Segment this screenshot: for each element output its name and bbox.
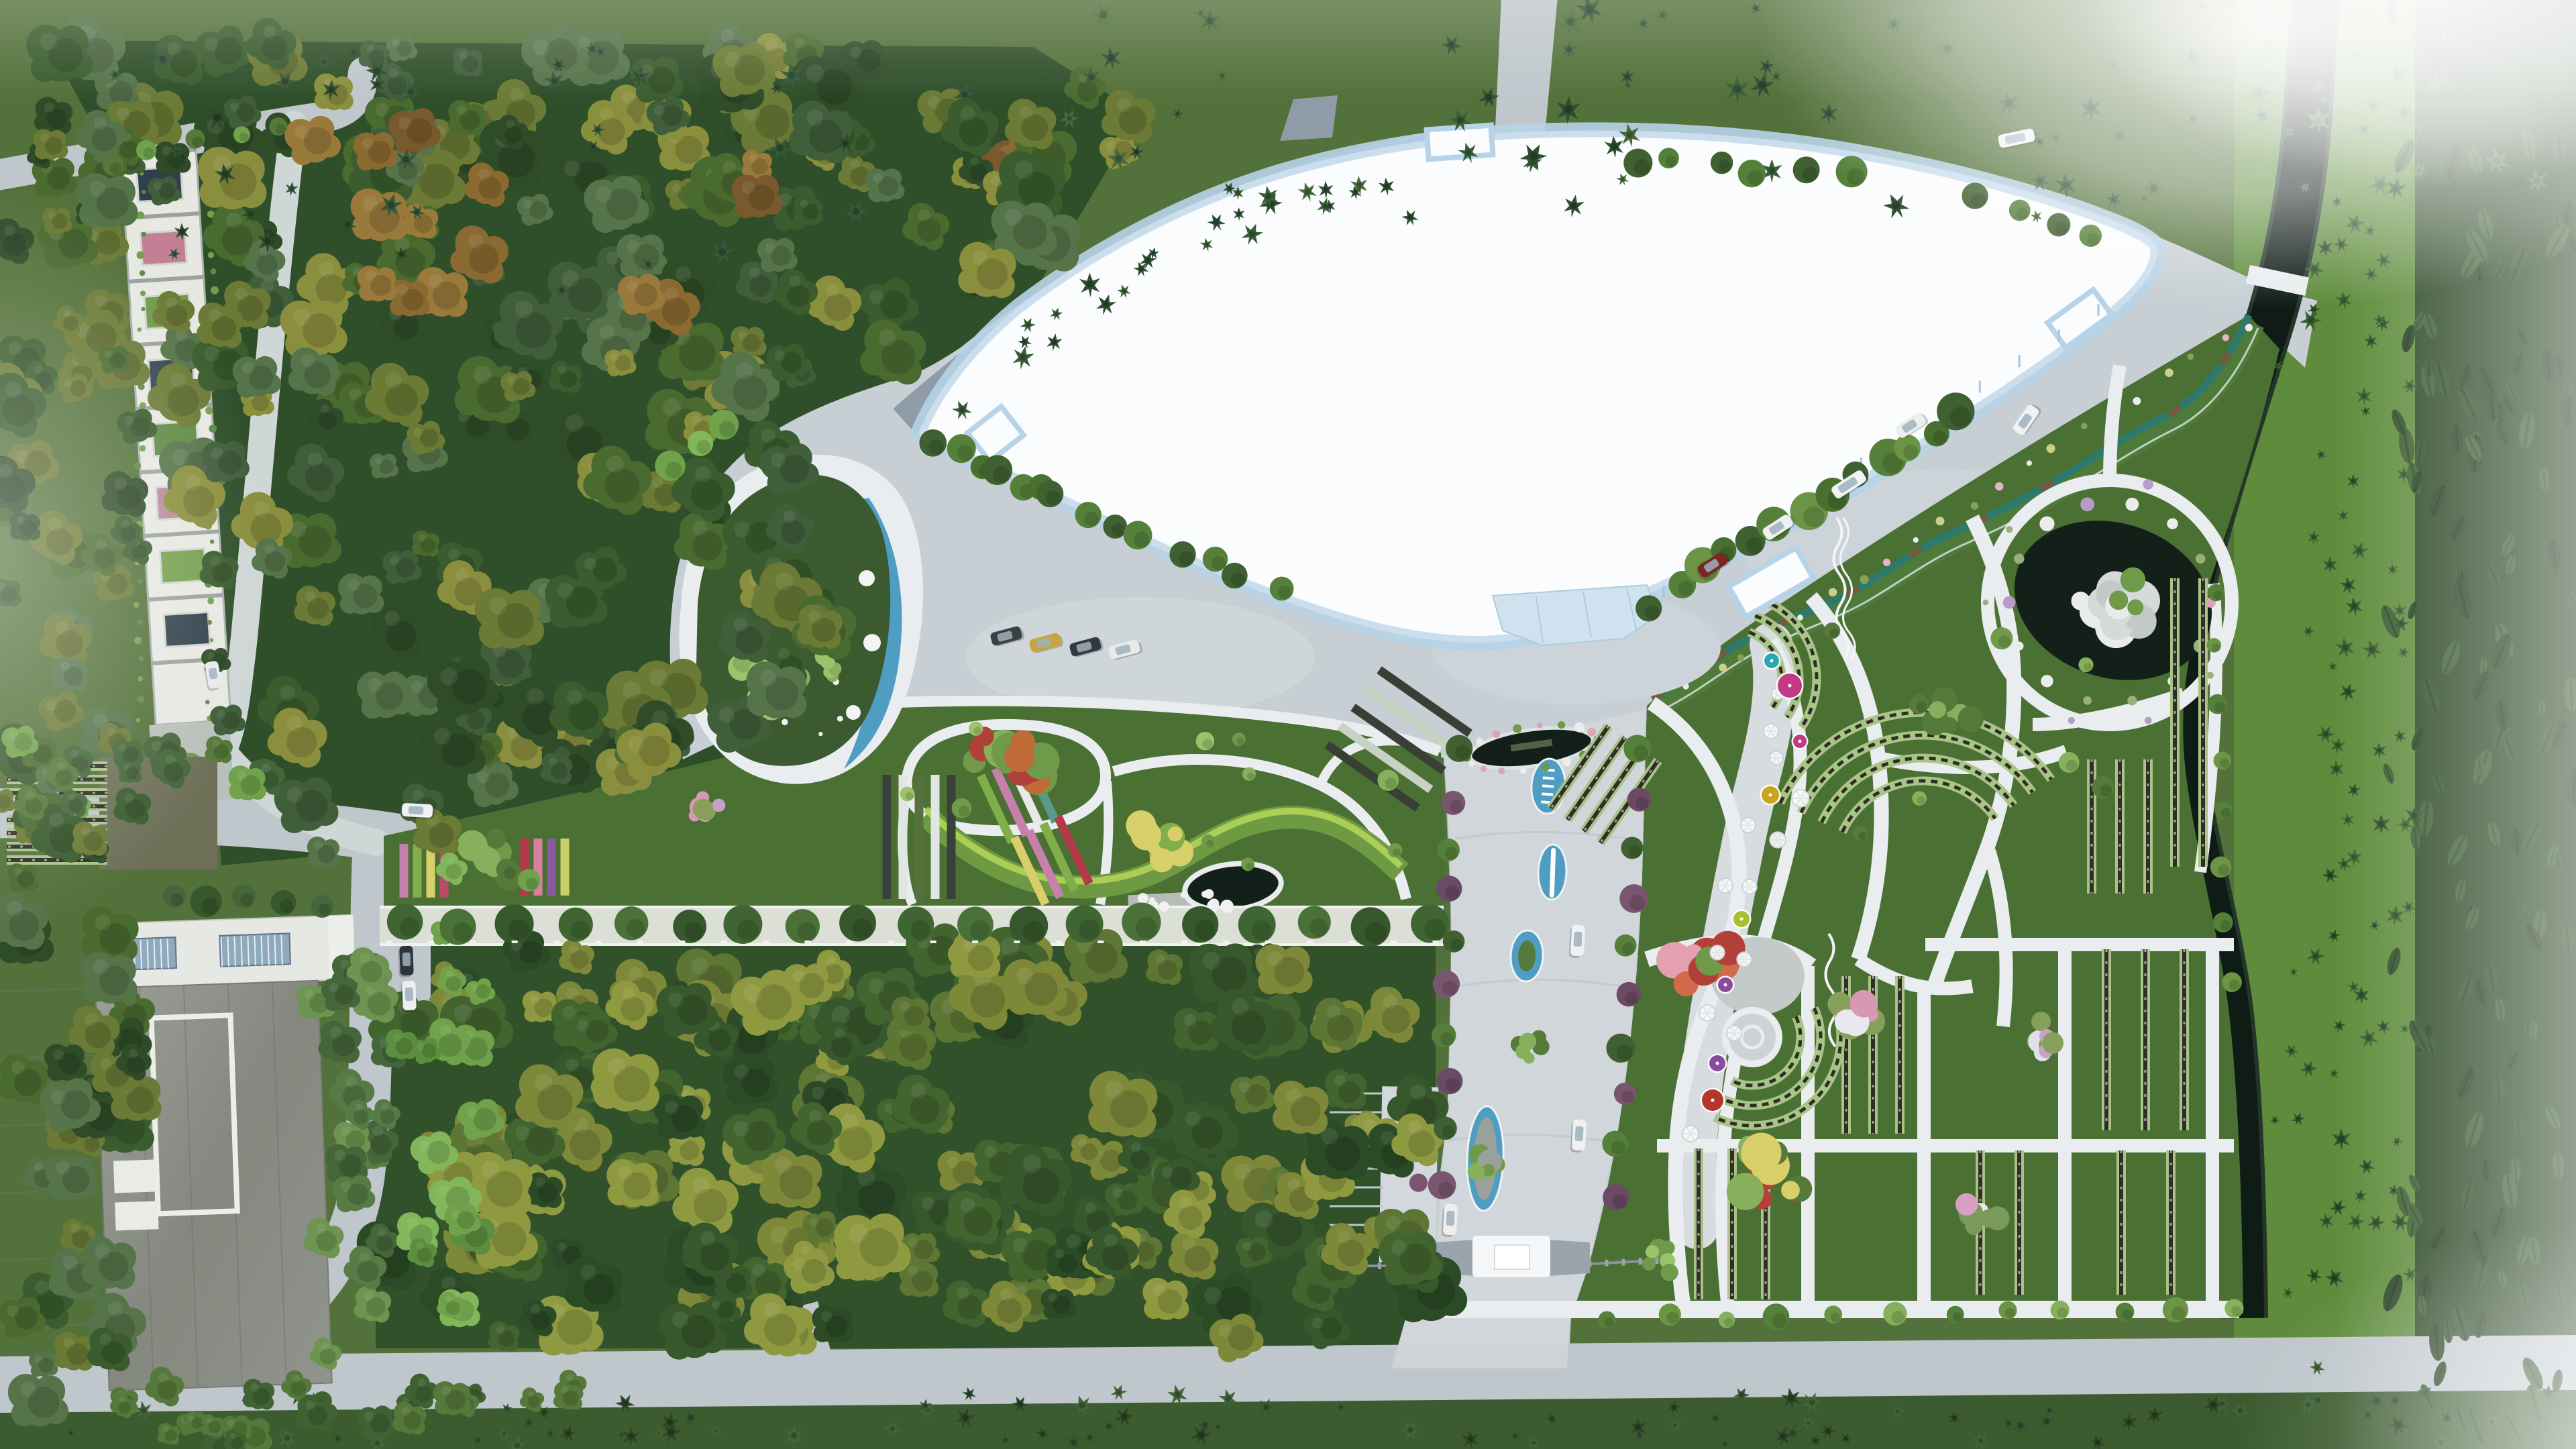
car-cabin	[1446, 1211, 1455, 1226]
planting-blob	[712, 799, 726, 812]
hedge-tree	[1737, 654, 1744, 661]
tree-shade	[1666, 156, 1677, 167]
tree-shade	[110, 162, 121, 174]
tree-shade	[1617, 1044, 1633, 1061]
planting-blob	[2127, 599, 2143, 615]
tree-shade	[959, 806, 969, 816]
tree-shade	[1206, 840, 1214, 847]
planting-blob	[1850, 990, 1878, 1018]
planting-blob	[1646, 1245, 1659, 1258]
planting-blob	[1167, 826, 1182, 841]
flower-dot	[2083, 696, 2092, 705]
post	[1433, 941, 1439, 943]
planting-blob	[1941, 717, 1957, 733]
flower-dot	[2230, 598, 2237, 606]
hedge-tree	[2222, 334, 2229, 341]
tree-shade	[1134, 531, 1150, 547]
planting-blob	[1727, 1173, 1764, 1210]
tree-shade	[1748, 170, 1763, 185]
tree-shade	[1746, 537, 1762, 554]
post	[2019, 355, 2021, 367]
tree-shade	[525, 877, 538, 890]
hedge-tree	[2027, 460, 2032, 466]
planting-blob	[1661, 1264, 1678, 1281]
flower-dot	[2014, 553, 2024, 563]
flower-dot	[2006, 672, 2013, 679]
tree-shade	[1385, 777, 1396, 789]
planting-blob	[1955, 1193, 1978, 1216]
tree-shade	[1231, 572, 1245, 586]
tree-shade	[2218, 865, 2229, 876]
tree-shade	[1212, 556, 1226, 570]
planting-blob	[2031, 1012, 2051, 1031]
tree-shade	[1622, 943, 1634, 955]
hedge-tree	[2046, 444, 2055, 453]
tree-shade	[1916, 702, 1927, 712]
post	[763, 941, 769, 943]
post	[805, 941, 811, 943]
hedge-tree	[2081, 423, 2088, 429]
parasol	[1708, 1054, 1727, 1073]
car	[400, 981, 417, 1013]
hedge-tree	[142, 190, 146, 194]
post	[470, 941, 476, 943]
tree-shade	[2221, 808, 2231, 818]
tree	[1046, 1244, 1082, 1279]
post	[847, 941, 853, 943]
hedge-tree	[1719, 663, 1727, 672]
stepping-stone	[1220, 900, 1234, 913]
planting-blob	[2109, 590, 2129, 610]
post	[1014, 941, 1020, 943]
tree-shade	[1393, 849, 1401, 857]
tree-shade	[2212, 643, 2220, 651]
post	[1265, 941, 1271, 943]
post	[1663, 586, 1665, 598]
tree-shade	[1450, 938, 1462, 951]
parasol	[1776, 672, 1804, 700]
tree-shade	[665, 462, 682, 479]
tree	[228, 764, 267, 801]
tree	[307, 836, 339, 867]
parasol-hub	[1776, 839, 1779, 841]
parasol-hub	[1769, 794, 1772, 797]
tree-shade	[1621, 1091, 1633, 1103]
post	[1378, 1263, 1381, 1269]
tree-shade	[957, 445, 973, 461]
parasol-hub	[1770, 730, 1772, 733]
planting-blob	[2121, 568, 2145, 592]
parasol-hub	[1788, 684, 1792, 688]
flower-dot	[2196, 554, 2206, 564]
parasol-hub	[1775, 757, 1778, 759]
tree-shade	[2005, 1308, 2015, 1318]
parasol-hub	[1799, 797, 1802, 800]
hedge-tree	[1971, 502, 1979, 510]
tree-shade	[1278, 586, 1291, 599]
tree-shade	[240, 894, 254, 907]
hedge-tree	[208, 252, 214, 258]
flower-dot	[2003, 596, 2016, 609]
tree-shade	[1678, 581, 1694, 596]
stepping-stone	[1149, 897, 1155, 903]
tree-shade	[1136, 917, 1157, 938]
hedge-tree	[1829, 588, 1837, 596]
tree-shade	[508, 919, 530, 941]
flower-dot	[2143, 479, 2153, 489]
parasol	[1701, 1088, 1725, 1113]
post	[1140, 941, 1146, 943]
tree-shade	[1084, 512, 1099, 527]
tree-shade	[2214, 590, 2223, 600]
tree-shade	[144, 148, 155, 159]
tree-shade	[1625, 991, 1639, 1005]
stepping-stone	[1204, 889, 1214, 899]
parasol	[1742, 879, 1757, 894]
tree-shade	[719, 421, 736, 437]
tree-shade	[1247, 772, 1254, 780]
post	[512, 941, 518, 943]
tree-shade	[239, 133, 249, 142]
tree-shade	[696, 440, 710, 454]
parasol-hub	[1799, 740, 1802, 743]
tree-shade	[1772, 1313, 1787, 1328]
flower-dot	[2041, 675, 2053, 687]
post	[930, 941, 936, 943]
parasol	[1763, 652, 1781, 670]
dot	[837, 716, 843, 722]
flower-dot	[2006, 526, 2012, 533]
tree-shade	[1079, 919, 1099, 940]
tree-shade	[1179, 551, 1193, 566]
stepping-stone	[1159, 902, 1169, 912]
aerial-site-plan	[0, 0, 2576, 1449]
tree-shade	[504, 867, 516, 879]
parasol-hub	[1716, 1062, 1719, 1065]
car-cabin	[1575, 1126, 1584, 1142]
parasol-hub	[1724, 983, 1727, 987]
parasol	[1718, 878, 1733, 893]
car-cabin	[409, 806, 424, 814]
parasol-hub	[1711, 1099, 1715, 1102]
tree-shade	[319, 904, 331, 916]
post	[1349, 941, 1355, 943]
car-cabin	[402, 953, 411, 966]
tree-shade	[1046, 490, 1061, 505]
post	[1589, 1260, 1592, 1267]
hedge-tree	[211, 286, 219, 294]
tree-shade	[627, 919, 645, 938]
parasol-hub	[1724, 884, 1727, 887]
tree-shade	[1829, 629, 1838, 637]
post	[1639, 1258, 1642, 1265]
stepping-stone	[1138, 893, 1148, 904]
planting-blob	[1519, 1033, 1536, 1051]
post	[721, 941, 727, 943]
tree-shade	[1450, 800, 1463, 813]
tree-shade	[1953, 1312, 1962, 1322]
post	[596, 941, 602, 943]
post	[1224, 941, 1230, 943]
car	[401, 803, 435, 820]
post	[1391, 941, 1397, 943]
tree-shade	[1195, 920, 1215, 940]
roof-notch	[1427, 125, 1493, 160]
tree-shade	[452, 922, 472, 943]
post	[428, 941, 434, 943]
parasol	[1764, 724, 1778, 739]
roof-pad	[115, 1201, 158, 1230]
tree-shade	[1438, 1182, 1453, 1197]
car	[1569, 924, 1586, 958]
planting-blob	[1642, 1257, 1656, 1271]
tree-shade	[1633, 745, 1649, 761]
tree-shade	[1611, 1140, 1625, 1155]
parasol	[1732, 910, 1752, 929]
flower-dot	[2015, 641, 2023, 650]
site-plan-canvas	[0, 0, 2576, 1449]
planting-blob	[486, 828, 506, 849]
hedge-tree	[2245, 324, 2253, 331]
tree	[1324, 1069, 1366, 1109]
flower-dot	[2125, 498, 2139, 511]
tree-shade	[2057, 1307, 2067, 1318]
tree-shade	[1803, 166, 1817, 181]
parasol-hub	[1770, 659, 1774, 663]
tree-shade	[737, 920, 759, 941]
planting-blob	[1011, 730, 1035, 754]
post	[972, 941, 978, 943]
tree-shade	[2220, 758, 2230, 768]
seating-sphere	[863, 634, 881, 651]
planting-blob	[1468, 1163, 1485, 1180]
hedge-tree	[1409, 1174, 1428, 1192]
parasol	[1792, 790, 1809, 807]
tree-shade	[2122, 1309, 2132, 1320]
tree-shade	[1112, 523, 1125, 537]
tree-shade	[970, 920, 990, 941]
tree	[592, 1048, 659, 1112]
tree-shade	[571, 920, 590, 939]
planting-blob	[2072, 592, 2090, 610]
hedge-tree	[1860, 575, 1868, 584]
hedge-tree	[2133, 397, 2141, 405]
planting-blob	[457, 830, 488, 861]
post	[386, 941, 392, 943]
parasol	[1717, 976, 1735, 994]
tree-shade	[171, 894, 184, 906]
dot	[782, 719, 788, 725]
parasol	[1710, 945, 1725, 960]
tree-shade	[1455, 745, 1470, 760]
planting-blob	[1741, 1133, 1781, 1173]
tree-shade	[1364, 922, 1386, 943]
tree-shade	[1023, 921, 1044, 943]
parasol	[1792, 733, 1809, 750]
tree-shade	[1251, 920, 1272, 941]
tree	[606, 1158, 659, 1209]
planting-blob	[1781, 1181, 1800, 1199]
flower-dot	[2127, 696, 2137, 705]
flower-dot	[2206, 672, 2213, 679]
planting-blob	[693, 799, 714, 820]
tree-shade	[1719, 160, 1731, 172]
tree-shade	[974, 727, 982, 735]
tree-shade	[1424, 919, 1445, 940]
post	[1622, 1259, 1625, 1266]
hedge-tree	[1995, 482, 2003, 490]
tree-shade	[1635, 796, 1648, 809]
tree-shade	[929, 439, 944, 454]
parasol-hub	[1716, 951, 1719, 954]
tree-shade	[1440, 1032, 1454, 1046]
stepping-stone	[1181, 892, 1187, 898]
tree-shade	[905, 792, 913, 800]
car	[1442, 1203, 1458, 1237]
tree-shade	[1803, 506, 1824, 527]
planting-blob	[1150, 848, 1174, 872]
tree-shade	[1666, 1312, 1678, 1324]
flower-dot	[2039, 517, 2054, 531]
tree	[386, 1029, 417, 1059]
tree-shade	[193, 137, 203, 148]
post	[553, 941, 559, 943]
post	[1605, 1260, 1609, 1267]
parasol-hub	[1747, 824, 1750, 826]
tree	[447, 100, 485, 136]
tree-shade	[993, 466, 1010, 483]
hedge-tree	[1913, 537, 1919, 543]
tree-shade	[1202, 739, 1212, 749]
flower-dot	[2068, 717, 2075, 724]
tree-shade	[1442, 981, 1457, 996]
post	[2098, 304, 2100, 316]
post	[1979, 381, 1981, 393]
seating-sphere	[859, 570, 875, 586]
tree-shade	[1442, 1126, 1454, 1138]
post	[1056, 941, 1062, 943]
tree-shade	[1629, 895, 1645, 910]
gate-kiosk	[1495, 1245, 1529, 1269]
tree-shade	[1892, 1311, 1904, 1324]
post	[1097, 941, 1104, 943]
stepping-stone	[1209, 898, 1220, 909]
tree-shade	[1612, 1194, 1627, 1209]
tree-shade	[2100, 784, 2112, 796]
tree-shade	[1445, 885, 1459, 900]
parasol	[1770, 751, 1783, 765]
tree-shade	[798, 922, 816, 941]
tree-shade	[1724, 1318, 1733, 1326]
tree	[742, 150, 772, 178]
flower-dot	[1983, 600, 1989, 606]
tree-shade	[1858, 832, 1866, 840]
tree-shade	[1633, 160, 1650, 176]
parasol	[1770, 832, 1786, 848]
tree-shade	[2214, 702, 2225, 712]
planting-blob	[1660, 1240, 1674, 1254]
seating-sphere	[846, 705, 861, 720]
planting-blob	[1957, 706, 1984, 732]
planting-blob	[1986, 1206, 2010, 1230]
tree-shade	[1604, 1318, 1613, 1327]
parasol-hub	[1740, 918, 1743, 921]
hedge-tree	[1883, 559, 1890, 566]
tree-shade	[2229, 979, 2240, 990]
tree-shade	[1237, 738, 1244, 745]
post	[637, 941, 643, 943]
tree-shade	[1998, 635, 2010, 647]
parasol-hub	[1733, 1032, 1735, 1034]
parasol-hub	[1689, 1132, 1692, 1135]
tree-shade	[1831, 1312, 1841, 1322]
planting-blob	[1523, 1053, 1535, 1064]
tree-shade	[2066, 760, 2078, 771]
parasol	[1727, 1026, 1741, 1040]
parasol-hub	[1748, 885, 1751, 888]
tree-shade	[1246, 863, 1253, 870]
post	[1181, 941, 1187, 943]
planting-blob	[1126, 810, 1156, 841]
tree	[547, 260, 611, 321]
parasol	[1682, 1126, 1699, 1142]
tree-shade	[910, 920, 930, 941]
tree-shade	[280, 900, 294, 914]
post	[888, 941, 894, 943]
parasol	[1737, 952, 1752, 967]
tree-shade	[2220, 920, 2231, 930]
tree-shade	[1445, 847, 1458, 860]
tree-shade	[1903, 445, 1918, 460]
tree-shade	[201, 898, 219, 915]
tree-shade	[1645, 605, 1660, 620]
post	[679, 941, 685, 943]
tree-shade	[2231, 1306, 2241, 1316]
flower-dot	[2145, 717, 2152, 724]
car-cabin	[405, 987, 414, 1001]
tree-shade	[1933, 431, 1947, 445]
parasol	[1741, 818, 1756, 833]
flower-dot	[2067, 480, 2076, 489]
tree-shade	[276, 124, 286, 134]
tree-shade	[1446, 1078, 1460, 1093]
parasol	[1699, 1005, 1715, 1021]
planting-blob	[2042, 1032, 2063, 1054]
car	[398, 946, 414, 978]
parasol	[1760, 785, 1781, 806]
tree	[793, 196, 822, 225]
hedge-tree	[210, 268, 216, 274]
tree-shade	[1629, 845, 1641, 857]
fog-top	[0, 0, 2576, 101]
water-feature-oval	[1538, 844, 1568, 900]
tree-shade	[685, 922, 703, 941]
car-cabin	[1574, 932, 1582, 947]
tree-shade	[1309, 918, 1328, 936]
hedge-tree	[141, 232, 146, 237]
roof-pad	[113, 1159, 158, 1193]
tree-shade	[1950, 407, 1971, 427]
dot	[818, 732, 822, 736]
parasol-hub	[1743, 958, 1746, 961]
flower-dot	[2206, 526, 2214, 533]
tree-shade	[1917, 796, 1925, 804]
flower-dot	[2167, 518, 2178, 529]
car	[1570, 1119, 1587, 1152]
flower-dot	[2080, 497, 2094, 511]
parasol-hub	[1706, 1012, 1709, 1014]
hedge-tree	[2165, 368, 2173, 377]
